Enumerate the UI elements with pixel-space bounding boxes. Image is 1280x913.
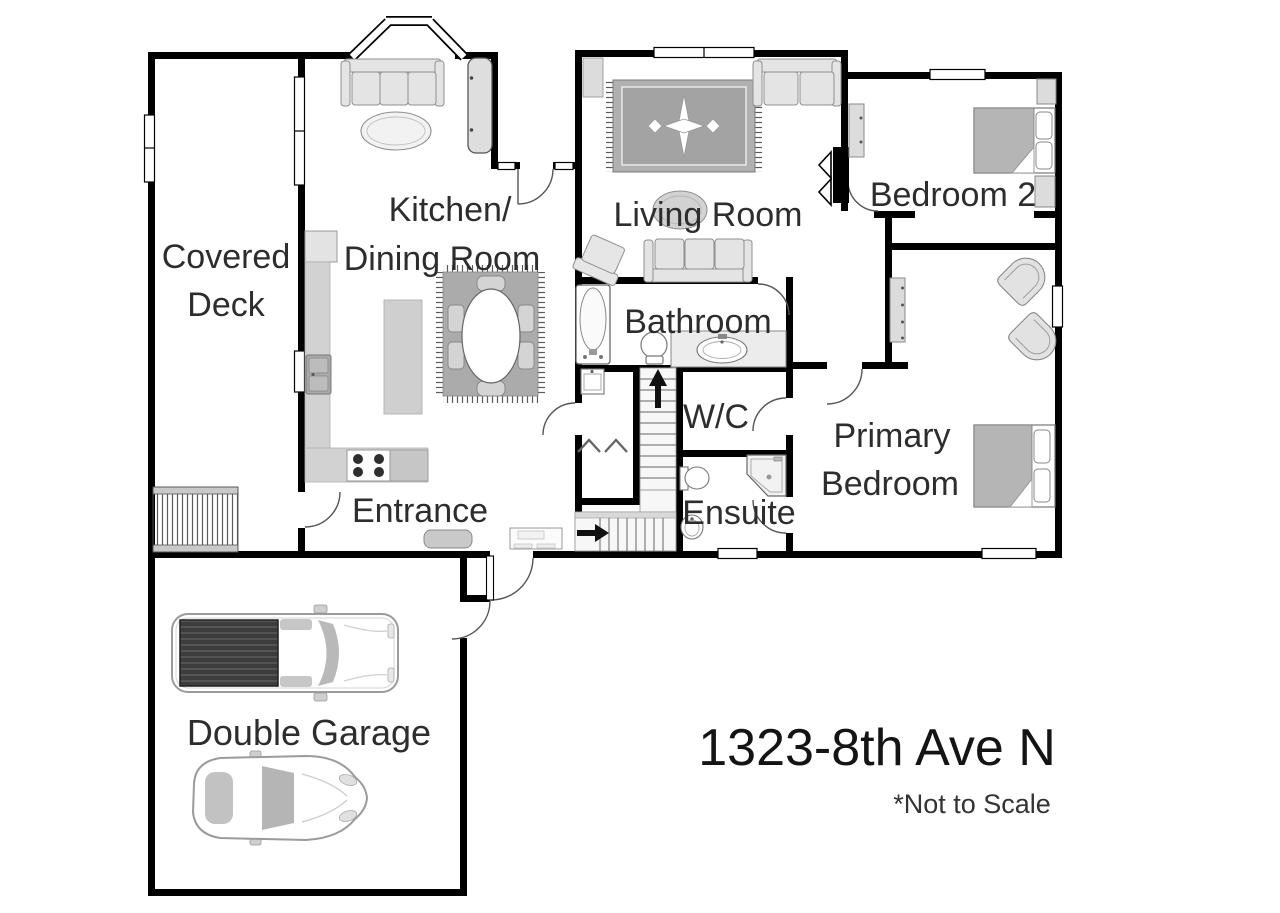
wc-label: W/C <box>683 398 749 436</box>
kitchen-label: Kitchen/ <box>389 191 512 229</box>
dining-chair-icon <box>448 342 464 369</box>
kitchen-sink-icon <box>306 355 331 394</box>
staircase <box>575 368 676 551</box>
closet-door-arc <box>543 403 575 435</box>
covered-deck-label: Covered <box>162 238 291 276</box>
pickup-truck-icon <box>172 605 398 701</box>
entrance-furniture <box>424 528 562 549</box>
primary-door-arc <box>827 369 862 404</box>
primary-bed-icon <box>974 425 1055 507</box>
dining-set <box>436 265 545 403</box>
ensuite-label: Ensuite <box>682 494 795 532</box>
corner-shower-icon <box>747 455 786 496</box>
kitchen-cabinet <box>390 450 428 481</box>
hanger-hooks-icon <box>578 440 627 452</box>
garage-label: Double Garage <box>187 712 431 753</box>
entrance-label: Entrance <box>352 492 488 530</box>
bedroom2-label: Bedroom 2 <box>870 176 1036 214</box>
kitchen-sofa-icon <box>341 59 444 106</box>
console-table-icon <box>583 58 603 97</box>
tub-chair-icon <box>995 250 1052 307</box>
wc-door-arc <box>753 398 786 431</box>
plan-title: 1323-8th Ave N <box>698 719 1056 777</box>
fridge-icon <box>305 231 337 262</box>
nightstand-icon <box>1035 176 1055 207</box>
rug-fringe <box>443 396 538 403</box>
sports-car-icon <box>193 751 367 845</box>
floor-plan-svg: Covered Deck Kitchen/ Dining Room Living… <box>0 0 1280 913</box>
closet-room <box>578 369 627 452</box>
floor-plan-screenshot: Covered Deck Kitchen/ Dining Room Living… <box>0 0 1280 913</box>
primary-bedroom-label: Primary <box>833 417 950 455</box>
tall-cabinet-icon <box>468 58 492 153</box>
primary-bedroom-label-2: Bedroom <box>821 465 959 503</box>
bathtub-icon <box>576 285 610 364</box>
living-room-rug-icon <box>606 80 762 172</box>
dining-chair-icon <box>448 305 464 332</box>
bench-icon <box>424 530 472 548</box>
dining-chair-icon <box>518 342 534 369</box>
kitchen-island <box>384 300 422 414</box>
back-door-arc <box>491 558 533 600</box>
kitchen-side-door-arc <box>518 169 553 204</box>
dining-chair-icon <box>518 305 534 332</box>
covered-deck-label-2: Deck <box>187 286 265 324</box>
entry-console-icon <box>510 528 562 549</box>
stove-icon <box>347 450 390 481</box>
nightstand-icon <box>1037 79 1056 104</box>
dining-table-icon <box>462 289 520 383</box>
back-door-leaf <box>487 556 494 600</box>
bedroom2-bed-icon <box>974 108 1055 173</box>
rug-fringe <box>436 272 443 396</box>
rug-fringe <box>538 272 545 396</box>
dresser-icon <box>849 104 864 157</box>
deck-stairs-icon <box>153 487 238 552</box>
bathroom-label: Bathroom <box>624 303 771 341</box>
living-room-label: Living Room <box>614 196 803 234</box>
ensuite-toilet-icon <box>680 467 709 490</box>
fireplace-icon <box>819 147 849 205</box>
oval-coffee-table-icon <box>361 112 431 150</box>
deck-entry-door-arc <box>305 492 340 527</box>
living-room-furniture <box>572 58 849 286</box>
bay-window <box>352 21 464 57</box>
scale-note: *Not to Scale <box>893 789 1051 819</box>
kitchen-label-2: Dining Room <box>344 240 541 278</box>
sofa-icon <box>644 239 752 282</box>
loveseat-icon <box>753 59 841 106</box>
garage-door-arc <box>452 601 490 639</box>
dresser-icon <box>890 278 905 342</box>
